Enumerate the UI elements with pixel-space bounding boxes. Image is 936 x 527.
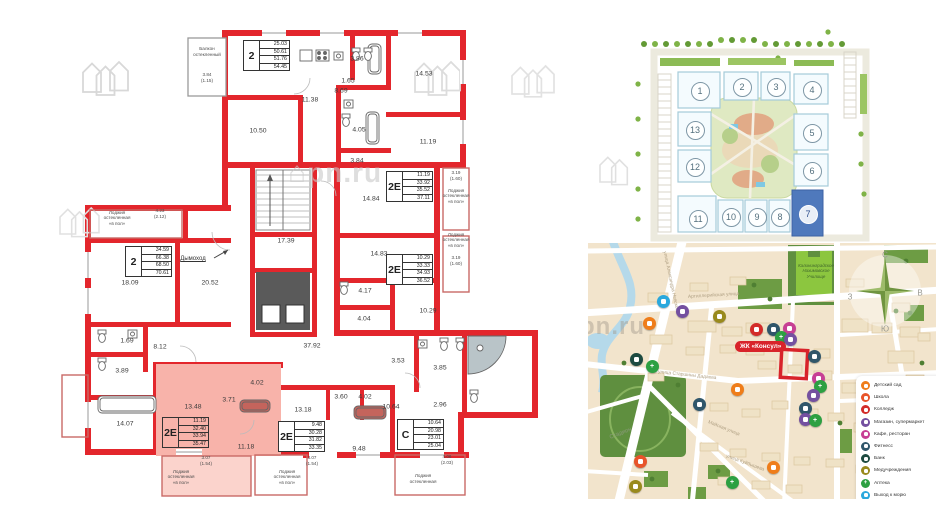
poi-medical-icon [713,310,726,323]
apartment-areas: 34.5966.3868.5070.61 [142,247,171,276]
site-building-number-4[interactable]: 4 [803,81,822,100]
apartment-info-box[interactable]: 2Е11.1933.9235.5237.11 [386,171,433,202]
poi-fitness-icon [808,350,821,363]
siteplan-image: 12341351261110987 [598,14,934,244]
area-value: 70.61 [142,269,171,277]
legend-sea-icon [861,491,870,499]
room-area-label: 11.18 [238,444,255,451]
loggia-annotation: Лоджияостекленная«в пол» [274,469,301,486]
room-area-label: 4.17 [358,288,371,295]
legend-school-icon [861,393,870,402]
site-building-number-13[interactable]: 13 [686,121,705,140]
legend-item-fitness: Фитнесс [861,442,936,451]
room-area-label: 2.96 [433,402,446,409]
room-area-label: 3.53 [391,358,404,365]
elevator-shaft [256,272,310,330]
complex-name-badge: ЖК «Консул» [735,341,786,352]
area-value: 50.61 [260,48,289,56]
site-building-number-9[interactable]: 9 [748,208,767,227]
legend-item-medical: Медучреждения [861,466,936,475]
area-value: 30.28 [295,429,324,437]
site-building-number-10[interactable]: 10 [722,208,741,227]
apartment-type-label: 2Е [163,418,179,447]
watermark-house-icon [83,62,128,95]
poi-pharmacy-icon: + [726,476,739,489]
room-area-label: 10.64 [382,404,399,411]
room-area-label: 1.65 [341,78,354,85]
area-value: 11.19 [179,418,208,425]
apartment-info-box[interactable]: 234.5966.3868.5070.61 [125,246,172,277]
area-value: 37.11 [403,194,432,202]
legend-bank-icon [861,454,870,463]
legend-item-school: Школа [861,393,936,402]
legend-item-label: Выход к морю [874,493,906,498]
room-area-label: 10.29 [419,308,436,315]
room-area-label: 14.53 [415,71,432,78]
apartment-info-box[interactable]: 2Е11.1932.4033.9435.47 [162,417,209,448]
floorplan-image: 11.3810.501.653.868.6914.534.0511.193.84… [0,0,565,527]
legend-item-supermarket: Магазин, супермаркет [861,418,936,427]
loggia-annotation: 4.06(2.03) [441,454,453,465]
area-value: 11.19 [403,172,432,179]
room-area-label: 3.60 [334,394,347,401]
legend-kindergarten-icon [861,381,870,390]
site-building-number-3[interactable]: 3 [767,78,786,97]
legend-item-label: Школа [874,395,889,400]
legend-fitness-icon [861,442,870,451]
loggia-annotation: 3.19(1.60) [450,170,462,181]
watermark: ⌂pn.ru [288,156,382,190]
poi-kindergarten-icon [643,317,656,330]
site-building-number-6[interactable]: 6 [803,162,822,181]
loggia-annotation: Лоджияостекленная«в пол» [443,232,470,249]
area-value: 10.64 [414,420,443,427]
apartment-type-label: 2 [244,41,260,70]
room-area-label: 11.19 [420,139,437,146]
area-value: 20.98 [414,427,443,435]
room-area-label: 18.09 [121,280,138,287]
apartment-type-label: 2Е [279,422,295,451]
loggia-annotation: Балконостекленный [193,46,221,57]
area-value: 33.92 [403,179,432,187]
area-value: 33.94 [179,432,208,440]
area-value: 23.01 [414,434,443,442]
apartment-areas: 10.2933.3334.9336.52 [403,255,432,284]
room-area-label: 37.92 [303,343,320,350]
area-value: 31.82 [295,436,324,444]
site-building-number-8[interactable]: 8 [771,208,790,227]
room-area-label: 4.04 [357,316,370,323]
apartment-areas: 9.4830.2831.8233.35 [295,422,324,451]
room-area-label: 14.84 [362,196,379,203]
area-value: 54.45 [260,63,289,71]
area-value: 9.48 [295,422,324,429]
room-area-label: 14.83 [370,251,387,258]
site-building-number-5[interactable]: 5 [803,124,822,143]
area-value: 25.03 [260,41,289,48]
watermark-house-icon [512,66,554,97]
room-area-label: 4.02 [250,380,263,387]
legend-cafe-icon [861,430,870,439]
legend-item-label: Аптека [874,481,890,486]
legend-item-label: Колледж [874,407,894,412]
apartment-type-label: 2Е [387,255,403,284]
poi-college-icon [750,323,763,336]
room-area-label: 9.48 [352,446,365,453]
legend-item-label: Кафе, ресторан [874,432,910,437]
room-area-label: 14.07 [116,421,133,428]
loggia-annotation: 4.23(2.12) [154,208,166,219]
apartment-areas: 10.6420.9823.0125.04 [414,420,443,449]
map-legend: Детский садШколаКолледжМагазин, супермар… [856,376,936,499]
room-area-label: 13.18 [294,407,311,414]
poi-supermarket-icon [807,389,820,402]
map-image: ЖК «Консул» КалининградскоеНахимовскоеУч… [588,243,936,499]
legend-supermarket-icon [861,418,870,427]
room-area-label: 4.02 [358,394,371,401]
apartment-info-box[interactable]: 2Е9.4830.2831.8233.35 [278,421,325,452]
courtyard-landscape [711,98,797,198]
apartment-areas: 11.1932.4033.9435.47 [179,418,208,447]
poi-bank-icon [630,353,643,366]
legend-item-cafe: Кафе, ресторан [861,430,936,439]
room-area-label: 10.50 [249,128,266,135]
area-value: 32.40 [179,425,208,433]
apartment-type-label: 2Е [387,172,403,201]
legend-item-label: Магазин, супермаркет [874,420,924,425]
legend-item-label: Фитнесс [874,444,893,449]
area-value: 33.35 [295,444,324,452]
poi-supermarket-icon [676,305,689,318]
legend-item-label: Детский сад [874,383,901,388]
poi-kindergarten-icon [731,383,744,396]
loggia-annotation: 3.84(1.15) [201,72,213,83]
compass-letter-w: З [848,293,853,302]
loggia-annotation: 3.19(1.60) [450,255,462,266]
loggia-annotation: 3.07(1.54) [306,455,318,466]
poi-sea-icon [657,295,670,308]
legend-item-pharmacy: +Аптека [861,479,936,488]
loggia-annotation: Лоджияостекленная«в пол» [104,210,131,227]
college-name-label: КалининградскоеНахимовскоеУчилище [792,263,840,279]
room-area-label: 3.71 [222,397,235,404]
compass-letter-e: В [917,289,922,298]
area-value: 10.29 [403,255,432,262]
area-value: 36.52 [403,277,432,285]
room-area-label: 4.05 [352,127,365,134]
chimney-label: Дымоход [180,256,205,262]
area-value: 68.50 [142,261,171,269]
area-value: 35.47 [179,440,208,448]
site-building-number-11[interactable]: 11 [689,210,708,229]
area-value: 35.52 [403,186,432,194]
room-area-label: 1.69 [120,338,133,345]
room-area-label: 3.89 [115,368,128,375]
room-area-label: 17.39 [277,238,294,245]
area-value: 34.93 [403,269,432,277]
compass-letter-n: С [882,251,888,260]
siteplan-drawing [598,14,934,244]
legend-item-kindergarten: Детский сад [861,381,936,390]
compass-letter-s: Ю [881,325,889,334]
area-value: 25.04 [414,442,443,450]
area-value: 33.33 [403,262,432,270]
legend-item-bank: Банк [861,454,936,463]
poi-medical-icon [629,480,642,493]
poi-school-icon [634,455,647,468]
apartment-type-label: 2 [126,247,142,276]
apartment-type-label: С [398,420,414,449]
poi-pharmacy-icon: + [809,414,822,427]
legend-item-label: Банк [874,456,885,461]
apartment-areas: 11.1933.9235.5237.11 [403,172,432,201]
loggia-annotation: Лоджияостекленная«в пол» [168,469,195,486]
legend-item-sea: Выход к морю [861,491,936,499]
room-area-label: 13.48 [184,404,201,411]
site-building-number-12[interactable]: 12 [686,158,705,177]
poi-kindergarten-icon [767,461,780,474]
area-value: 66.38 [142,254,171,262]
loggia-annotation: Лоджияостекленная [410,473,437,484]
listing-media-panel: 11.3810.501.653.868.6914.534.0511.193.84… [0,0,936,527]
loggia-annotation: 3.07(1.54) [200,455,212,466]
area-value: 34.59 [142,247,171,254]
apartment-info-box[interactable]: 2Е10.2933.3334.9336.52 [386,254,433,285]
poi-fitness-icon [693,398,706,411]
legend-college-icon [861,405,870,414]
poi-pharmacy-icon: + [646,360,659,373]
room-area-label: 20.52 [201,280,218,287]
room-area-label: 11.38 [302,97,319,104]
area-value: 51.76 [260,55,289,63]
watermark: pn.ru [588,313,645,341]
site-building-number-2[interactable]: 2 [733,78,752,97]
room-area-label: 8.69 [334,88,347,95]
site-building-number-7[interactable]: 7 [799,205,818,224]
room-area-label: 3.85 [433,365,446,372]
apartment-areas: 25.0350.6151.7654.45 [260,41,289,70]
legend-item-college: Колледж [861,405,936,414]
apartment-info-box[interactable]: 225.0350.6151.7654.45 [243,40,290,71]
house-icon: ⌂ [288,156,307,189]
loggia-annotation: Лоджияостекленная«в пол» [443,188,470,205]
room-area-label: 3.86 [350,56,363,63]
apartment-info-box[interactable]: С10.6420.9823.0125.04 [397,419,444,450]
legend-pharmacy-icon: + [861,479,870,488]
site-building-number-1[interactable]: 1 [691,82,710,101]
legend-item-label: Медучреждения [874,468,911,473]
room-area-label: 8.12 [153,344,166,351]
legend-medical-icon [861,466,870,475]
